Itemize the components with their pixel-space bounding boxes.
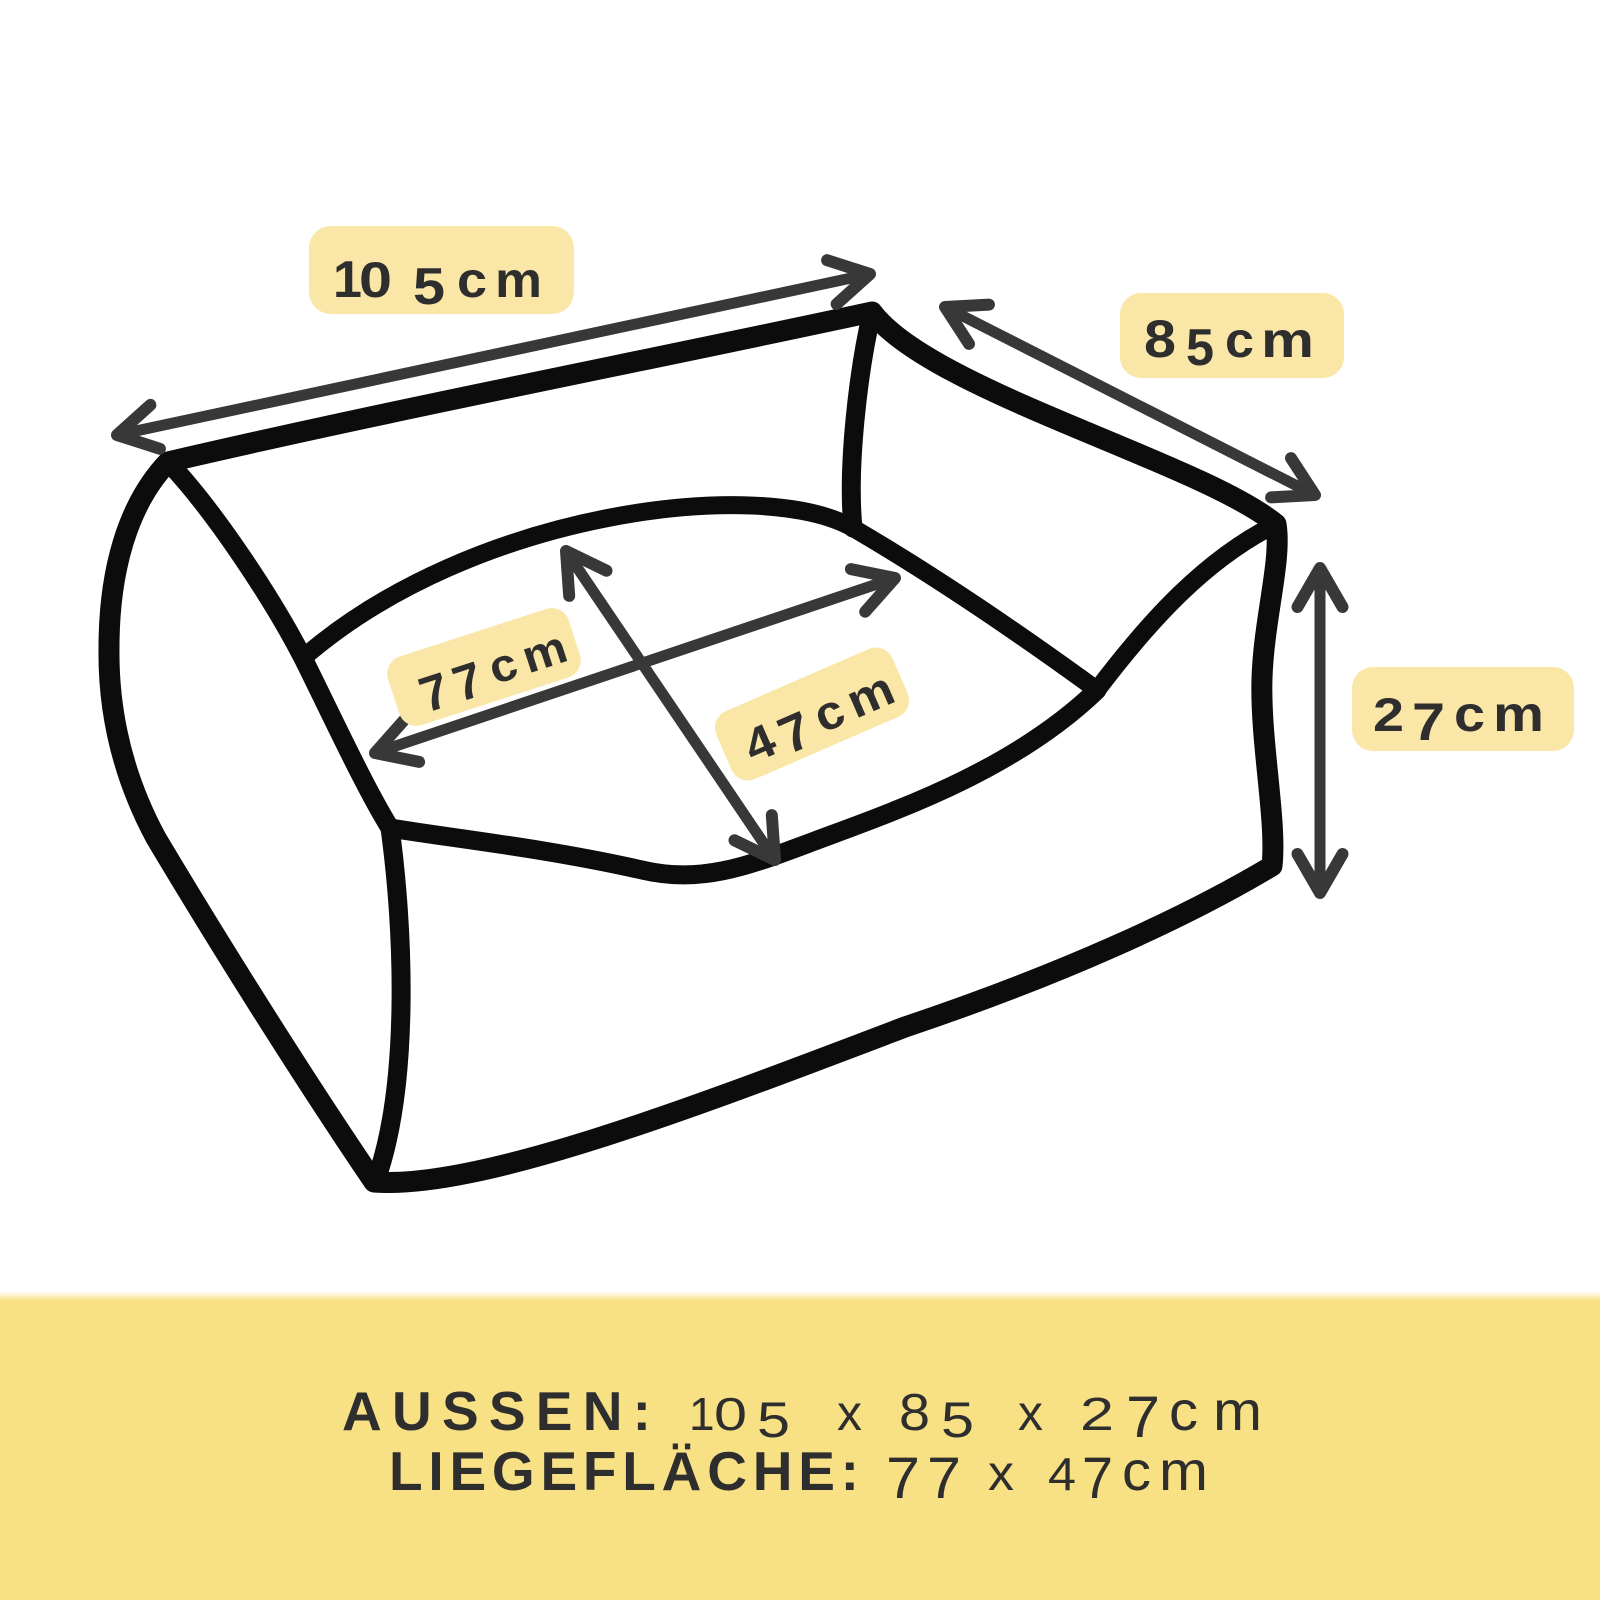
svg-text:1: 1 [689,1388,715,1440]
svg-text:7: 7 [927,1446,961,1511]
svg-text:2: 2 [1080,1388,1114,1440]
svg-text:8: 8 [1144,310,1176,369]
svg-text:c: c [1225,312,1254,368]
svg-text:7: 7 [886,1446,920,1511]
svg-text:m: m [1493,686,1544,742]
svg-text:8: 8 [899,1384,930,1442]
svg-text:m: m [1261,312,1314,368]
svg-text:7: 7 [1082,1446,1113,1511]
svg-text:c: c [457,252,487,308]
svg-text:5: 5 [413,258,445,316]
svg-text:4: 4 [1048,1448,1076,1500]
svg-text:x: x [837,1385,862,1441]
svg-text:0: 0 [714,1388,747,1440]
svg-text:m: m [495,252,542,308]
svg-text:c: c [1122,1439,1151,1502]
svg-text:5: 5 [941,1392,974,1448]
svg-text:2: 2 [1373,688,1404,741]
svg-text:x: x [988,1445,1014,1501]
svg-text:m: m [1159,1439,1208,1502]
svg-text:x: x [1018,1385,1043,1441]
svg-text:m: m [1213,1379,1262,1442]
svg-text:7: 7 [1412,693,1445,752]
svg-text:5: 5 [1186,319,1214,377]
svg-text:c: c [1169,1379,1198,1442]
svg-text:LIEGEFLÄCHE:: LIEGEFLÄCHE: [389,1440,859,1502]
svg-text:c: c [1454,686,1485,742]
svg-text:1: 1 [333,251,362,309]
svg-text:0: 0 [359,252,392,308]
